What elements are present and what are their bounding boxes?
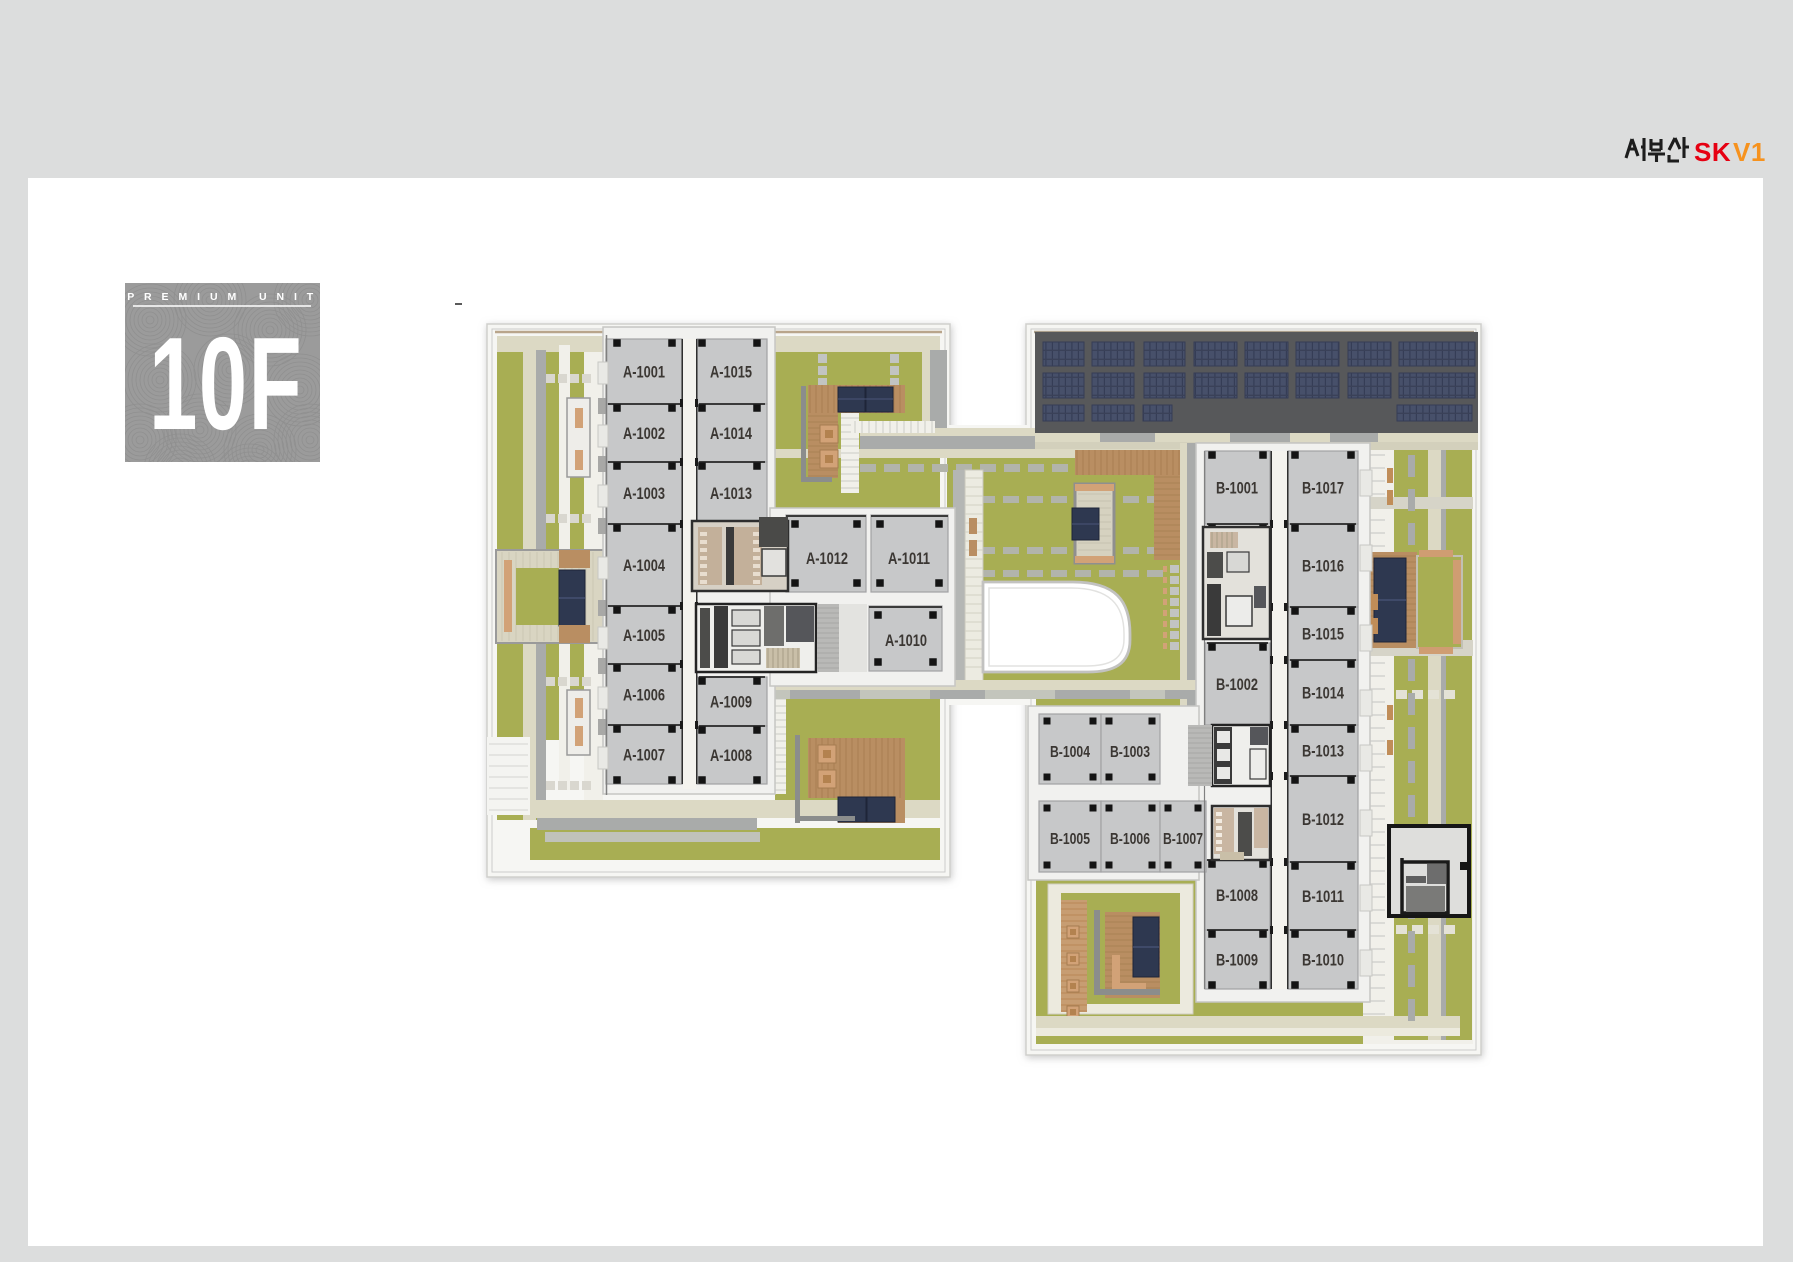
svg-text:B-1007: B-1007 xyxy=(1163,831,1203,848)
svg-text:A-1002: A-1002 xyxy=(623,425,665,443)
svg-text:A-1013: A-1013 xyxy=(710,485,752,503)
svg-text:B-1004: B-1004 xyxy=(1050,744,1090,761)
svg-text:A-1005: A-1005 xyxy=(623,627,665,645)
svg-text:B-1012: B-1012 xyxy=(1302,811,1344,829)
svg-text:B-1009: B-1009 xyxy=(1216,952,1258,970)
svg-text:B-1005: B-1005 xyxy=(1050,831,1090,848)
svg-text:B-1003: B-1003 xyxy=(1110,744,1150,761)
svg-text:10F: 10F xyxy=(149,310,303,458)
svg-text:B-1006: B-1006 xyxy=(1110,831,1150,848)
svg-text:B-1011: B-1011 xyxy=(1302,888,1344,906)
svg-text:A-1007: A-1007 xyxy=(623,747,665,765)
svg-text:A-1010: A-1010 xyxy=(885,632,927,650)
svg-text:V1: V1 xyxy=(1733,137,1766,167)
svg-text:A-1009: A-1009 xyxy=(710,694,752,712)
svg-text:B-1015: B-1015 xyxy=(1302,626,1344,644)
svg-text:A-1011: A-1011 xyxy=(888,550,930,568)
svg-text:A-1006: A-1006 xyxy=(623,687,665,705)
svg-text:B-1010: B-1010 xyxy=(1302,952,1344,970)
svg-text:A-1001: A-1001 xyxy=(623,364,665,382)
svg-text:A-1008: A-1008 xyxy=(710,747,752,765)
svg-text:B-1014: B-1014 xyxy=(1302,685,1345,703)
svg-text:A-1012: A-1012 xyxy=(806,550,848,568)
svg-text:B-1008: B-1008 xyxy=(1216,887,1258,905)
svg-text:P R E M I U M U N I T: P R E M I U M U N I T xyxy=(127,291,316,303)
svg-text:B-1002: B-1002 xyxy=(1216,676,1258,694)
svg-text:A-1003: A-1003 xyxy=(623,485,665,503)
svg-text:SK: SK xyxy=(1694,137,1731,167)
svg-text:A-1015: A-1015 xyxy=(710,364,752,382)
svg-text:B-1013: B-1013 xyxy=(1302,743,1344,761)
svg-text:A-1004: A-1004 xyxy=(623,557,666,575)
svg-text:B-1016: B-1016 xyxy=(1302,558,1344,576)
svg-text:A-1014: A-1014 xyxy=(710,425,753,443)
svg-text:B-1001: B-1001 xyxy=(1216,480,1258,498)
svg-text:B-1017: B-1017 xyxy=(1302,480,1344,498)
